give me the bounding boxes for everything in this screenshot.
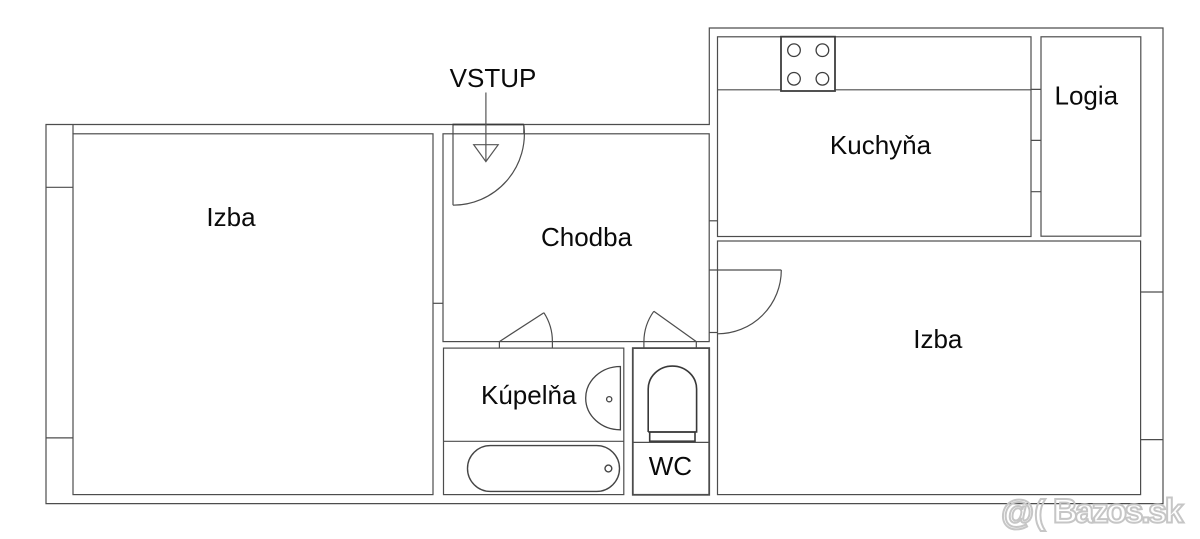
svg-text:Kúpelňa: Kúpelňa (481, 380, 577, 410)
svg-text:Logia: Logia (1054, 80, 1118, 110)
svg-text:WC: WC (649, 451, 692, 481)
svg-text:@(: @( (1001, 494, 1046, 532)
svg-text:Chodba: Chodba (541, 222, 633, 252)
svg-text:Izba: Izba (206, 202, 256, 232)
svg-text:Izba: Izba (913, 324, 963, 354)
svg-text:Bazos.sk: Bazos.sk (1053, 493, 1184, 531)
svg-text:Kuchyňa: Kuchyňa (830, 130, 932, 160)
svg-text:VSTUP: VSTUP (450, 63, 537, 93)
